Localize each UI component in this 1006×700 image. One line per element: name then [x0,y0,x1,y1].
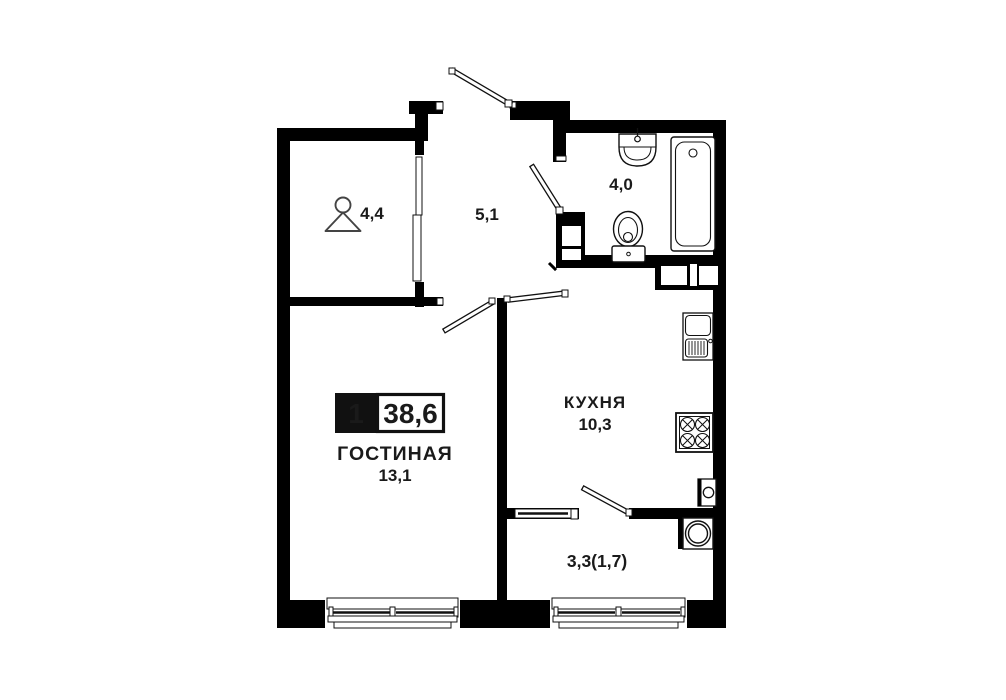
washing-machine-icon [678,518,713,549]
door-leaf [530,164,563,213]
window-balcony [550,597,687,630]
wall-top-left [277,128,428,141]
heater-dial [703,487,713,497]
toilet-button [627,252,631,256]
badge-total-area: 38,6 [383,398,438,429]
bathroom-area-label: 4,0 [609,175,633,194]
door-end [449,68,455,74]
bathtub-icon [671,137,715,251]
floor-plan-svg: 1 38,6 4,4 5,1 4,0 КУХНЯ 10,3 ГОСТИНАЯ 1… [0,0,1006,700]
living-name-label: ГОСТИНАЯ [337,443,453,465]
sink-tap [635,136,641,142]
jamb-tick [436,102,443,110]
toilet-drain [624,233,633,242]
wall-central [497,298,507,628]
entrance-door [449,68,512,107]
washer-mount [678,518,683,549]
hanger-hook [336,198,351,213]
living-area-label: 13,1 [378,466,411,485]
badge-room-count: 1 [348,398,364,429]
door-leaf [443,300,494,333]
wardrobe-area-label: 4,4 [360,204,384,223]
duct-box [690,264,697,286]
floor-plan-page: 1 38,6 4,4 5,1 4,0 КУХНЯ 10,3 ГОСТИНАЯ 1… [0,0,1006,700]
sliding-wardrobe-door [413,155,425,282]
toilet-icon [612,212,645,263]
balcony-glazing [515,508,629,519]
bathtub-inner [676,142,711,246]
sliding-door-panel [413,215,421,281]
door-hinge [489,298,495,304]
bathtub-drain [689,149,697,157]
door-jamb-ticks [436,102,566,305]
window-sill [328,616,457,622]
wall-wardrobe-bottom [277,297,443,306]
kitchen-area-label: 10,3 [578,415,611,434]
sliding-door-panel [416,157,422,215]
hallway-area-label: 5,1 [475,205,499,224]
window-sill [559,622,678,628]
bathroom-sink-icon [619,128,656,166]
hanger-body [326,213,361,232]
jamb-tick [556,156,566,161]
living-room-door [443,298,495,333]
apartment-badge: 1 38,6 [335,393,444,433]
sink-tap [709,339,713,343]
door-hinge [626,509,632,516]
heater-mount [698,479,702,506]
wall-left-outer [277,128,290,628]
door-leaf [508,291,566,302]
kitchen-sink-icon [683,313,713,360]
duct-box [562,249,581,260]
door-stop-tick [548,262,557,271]
wall-bathroom-top [553,120,726,133]
water-heater-icon [698,479,716,506]
balcony-window-post [571,509,578,519]
door-hinge [504,296,510,302]
walls [277,101,726,628]
bathroom-door [530,164,563,214]
duct-box [562,226,581,246]
kitchen-door [504,290,568,302]
door-leaf [450,68,512,107]
hanger-icon [326,198,361,232]
kitchen-name-label: КУХНЯ [564,393,626,412]
duct-shaft-hall [562,226,581,260]
door-hinge [505,100,512,107]
window-living-room [325,597,460,630]
jamb-tick [437,298,443,305]
door-hinge [556,207,563,214]
window-sill [553,616,684,622]
balcony-area-label: 3,3(1,7) [567,551,627,571]
duct-box [661,266,687,285]
door-end [562,290,568,297]
stove-icon [676,413,713,452]
sink-drainer [686,316,711,336]
window-sill [334,622,451,628]
wall-bathroom-left [553,112,566,162]
duct-box [699,266,718,285]
washer-drum-inner [689,524,708,543]
